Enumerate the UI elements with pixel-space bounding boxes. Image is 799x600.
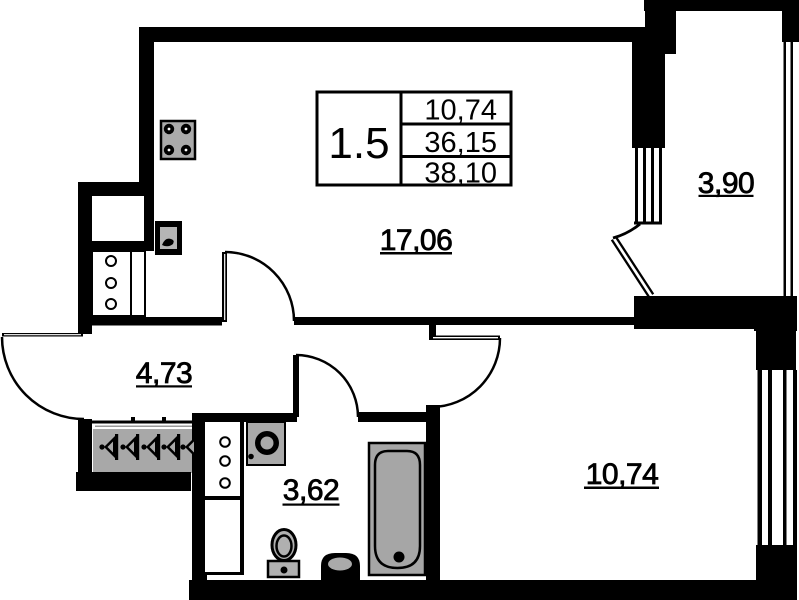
- svg-text:3,62: 3,62: [283, 474, 339, 507]
- svg-text:36,15: 36,15: [424, 127, 497, 159]
- svg-text:10,74: 10,74: [586, 458, 659, 491]
- svg-text:1.5: 1.5: [328, 119, 389, 168]
- svg-text:10,74: 10,74: [424, 95, 497, 127]
- svg-text:38,10: 38,10: [424, 158, 497, 190]
- svg-text:4,73: 4,73: [136, 357, 192, 390]
